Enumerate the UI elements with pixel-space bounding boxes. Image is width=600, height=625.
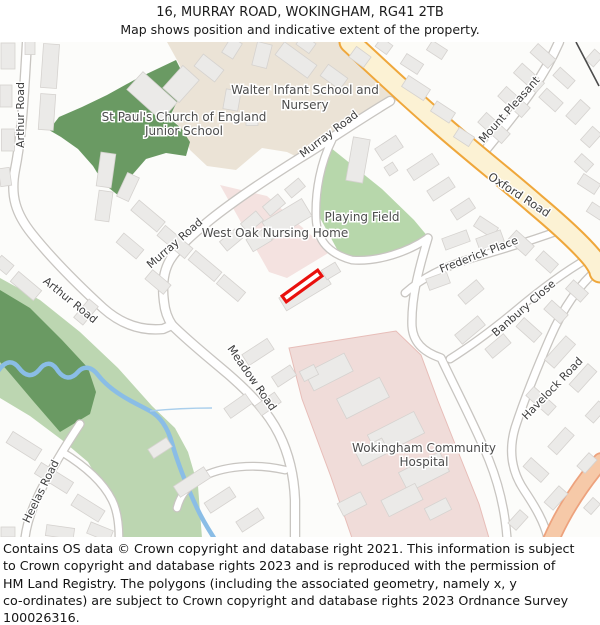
label-walter-school-line2: Nursery bbox=[281, 98, 328, 112]
building bbox=[38, 94, 55, 131]
label-st-pauls-line1: St Paul's Church of England bbox=[102, 110, 267, 124]
page-title: 16, MURRAY ROAD, WOKINGHAM, RG41 2TB bbox=[0, 5, 600, 20]
building bbox=[1, 527, 15, 537]
building bbox=[40, 43, 59, 88]
building bbox=[0, 85, 12, 107]
label-arthur-road-top: Arthur Road bbox=[14, 82, 27, 148]
label-west-oak-nursing-home: West Oak Nursing Home bbox=[202, 226, 348, 240]
copyright-notice: Contains OS data © Crown copyright and d… bbox=[0, 537, 600, 625]
label-st-pauls-line2: Junior School bbox=[144, 124, 223, 138]
copyright-line: co-ordinates) are subject to Crown copyr… bbox=[3, 592, 597, 609]
building bbox=[2, 129, 15, 151]
building bbox=[0, 167, 12, 186]
map-header: 16, MURRAY ROAD, WOKINGHAM, RG41 2TB Map… bbox=[0, 0, 600, 42]
copyright-line: to Crown copyright and database rights 2… bbox=[3, 557, 597, 574]
label-playing-field: Playing Field bbox=[324, 210, 399, 224]
copyright-line: 100026316. bbox=[3, 609, 597, 625]
building bbox=[1, 43, 15, 69]
label-walter-school-line1: Walter Infant School and bbox=[231, 83, 379, 97]
label-hospital-line2: Hospital bbox=[400, 455, 449, 469]
copyright-line: Contains OS data © Crown copyright and d… bbox=[3, 540, 597, 557]
building bbox=[25, 42, 35, 55]
copyright-line: HM Land Registry. The polygons (includin… bbox=[3, 575, 597, 592]
page-subtitle: Map shows position and indicative extent… bbox=[0, 22, 600, 37]
map-canvas: Arthur Road Arthur Road Murray Road Murr… bbox=[0, 42, 600, 538]
map-container: Arthur Road Arthur Road Murray Road Murr… bbox=[0, 42, 600, 538]
property-map-page: 16, MURRAY ROAD, WOKINGHAM, RG41 2TB Map… bbox=[0, 0, 600, 625]
label-hospital-line1: Wokingham Community bbox=[352, 441, 496, 455]
